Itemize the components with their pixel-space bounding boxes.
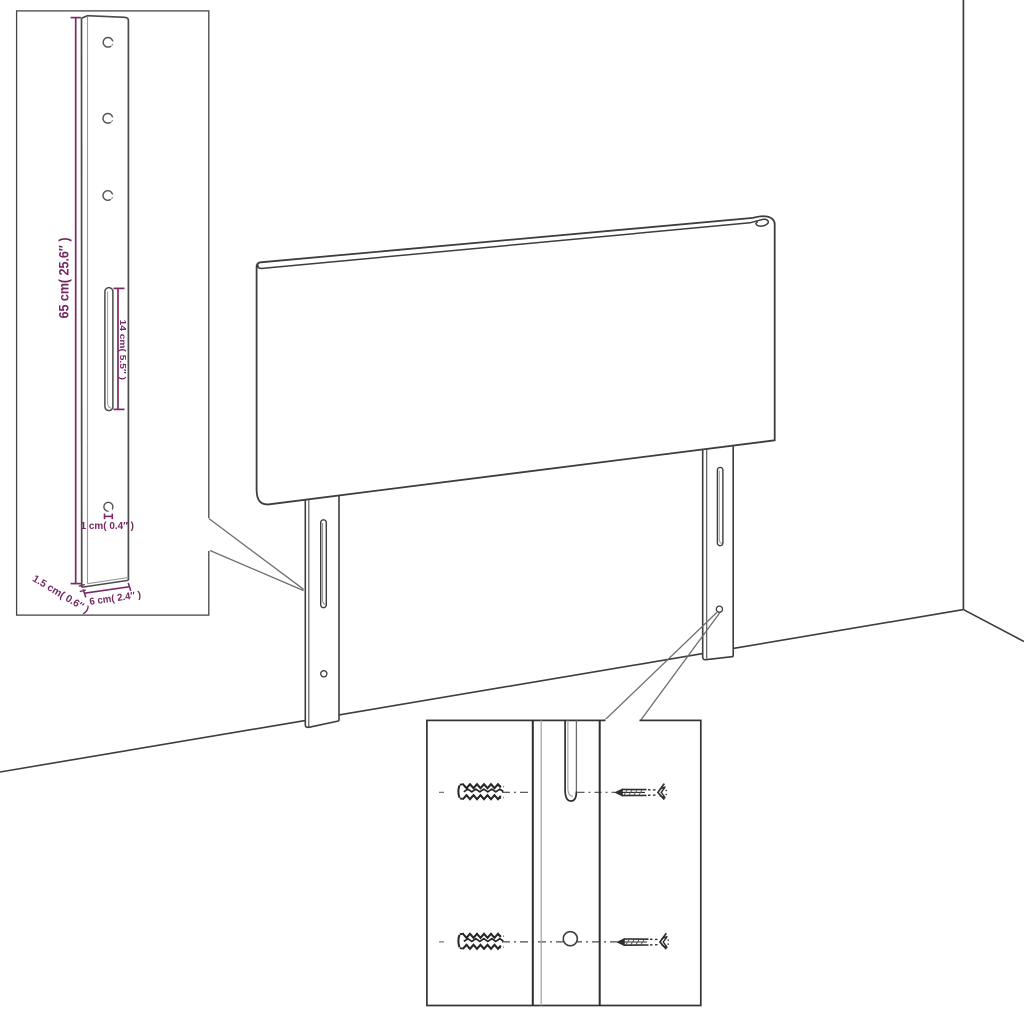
- svg-text:14 cm( 5.5″ ): 14 cm( 5.5″ ): [118, 320, 128, 381]
- svg-text:65 cm( 25.6″ ): 65 cm( 25.6″ ): [56, 238, 72, 319]
- svg-text:1 cm( 0.4″ ): 1 cm( 0.4″ ): [81, 521, 134, 532]
